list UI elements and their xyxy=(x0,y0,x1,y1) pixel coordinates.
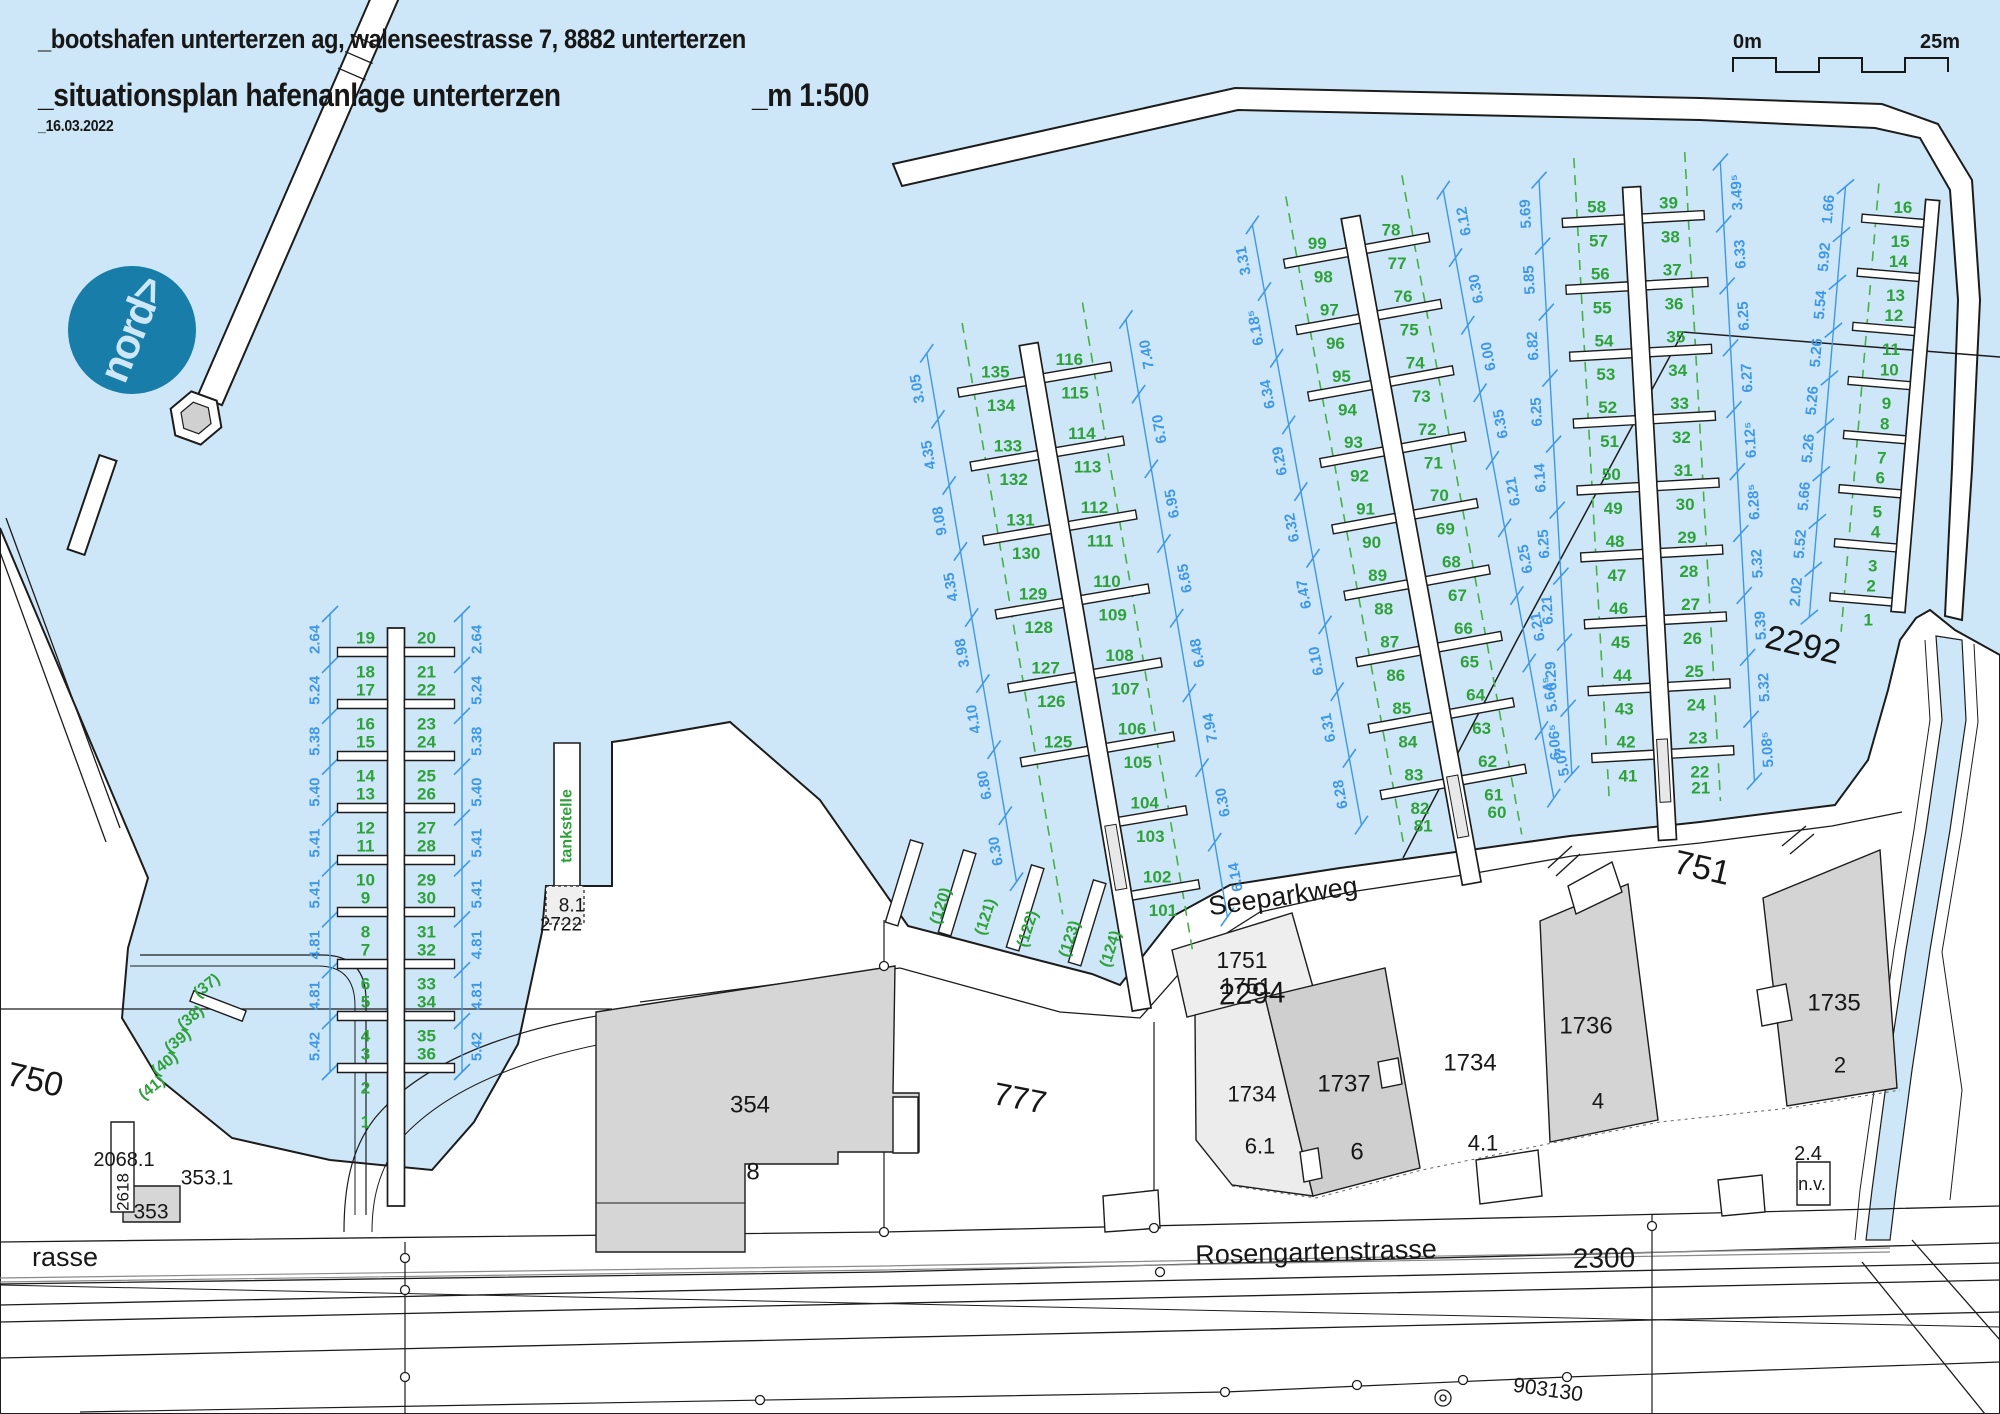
berth-number: 4 xyxy=(1871,523,1881,542)
berth-number: 43 xyxy=(1615,700,1634,719)
berth-number: 31 xyxy=(1674,461,1693,480)
berth-number: 82 xyxy=(1410,799,1429,818)
dimension-value: 5.52 xyxy=(1791,529,1810,560)
scale-bar-start: 0m xyxy=(1733,31,1762,53)
berth-number: 104 xyxy=(1130,794,1159,813)
berth-number: 21 xyxy=(1691,779,1710,798)
berth-number: 11 xyxy=(357,837,375,856)
situationsplan-page: 2.645.245.385.405.415.414.814.815.422.64… xyxy=(0,0,2000,1414)
berth-number: 7 xyxy=(361,941,370,960)
berth-number: 49 xyxy=(1604,499,1623,518)
berth-number: 15 xyxy=(1891,232,1910,251)
berth-number: 92 xyxy=(1350,467,1369,486)
berth-number: 25 xyxy=(1685,662,1704,681)
dimension-value: 6.29 xyxy=(1542,661,1561,691)
dimension-value: 5.26 xyxy=(1799,433,1818,464)
plan-date: _16.03.2022 xyxy=(38,118,783,136)
parcel-label: 2618 xyxy=(114,1173,133,1211)
dimension-value: 5.66 xyxy=(1795,481,1814,512)
berth-number: 70 xyxy=(1430,486,1449,505)
berth-number: 3 xyxy=(1868,557,1877,576)
berth-number: 7 xyxy=(1877,448,1886,467)
berth-number: 94 xyxy=(1338,400,1357,419)
berth-number: 110 xyxy=(1093,572,1120,591)
finger-pier xyxy=(338,648,388,657)
berth-number: 91 xyxy=(1356,500,1375,519)
berth-number: 95 xyxy=(1332,367,1351,386)
scale-bar: 0m 25m xyxy=(1728,26,1968,86)
berth-number: 129 xyxy=(1019,584,1047,603)
berth-number: 131 xyxy=(1006,510,1034,529)
berth-number: 108 xyxy=(1105,646,1133,665)
dimension-value: 5.42 xyxy=(469,1032,486,1061)
dimension-value: 6.14 xyxy=(1531,462,1550,493)
berth-number: 37 xyxy=(1663,260,1682,279)
berth-number: 38 xyxy=(1661,227,1680,246)
dimension-value: 5.26 xyxy=(1807,338,1826,369)
berth-number: 85 xyxy=(1392,699,1411,718)
berth-number: 130 xyxy=(1012,544,1040,563)
berth-number: 32 xyxy=(1672,428,1691,447)
title-address: _bootshafen unterterzen ag, walenseestra… xyxy=(38,24,783,55)
survey-point xyxy=(1648,1222,1657,1231)
berth-number: 34 xyxy=(1668,361,1687,380)
dimension-value: 6.27 xyxy=(1738,363,1757,393)
dimension-value: 6.82 xyxy=(1524,331,1543,361)
parcel-label: Rosengartenstrasse xyxy=(1195,1234,1437,1270)
parcel-label: 2068.1 xyxy=(93,1149,154,1171)
berth-number: 71 xyxy=(1424,453,1443,472)
berth-number: 61 xyxy=(1484,785,1503,804)
berth-number: 115 xyxy=(1061,384,1088,403)
berth-number: 4 xyxy=(361,1027,371,1046)
dimension-value: 2.02 xyxy=(1787,577,1806,608)
berth-number: 116 xyxy=(1056,350,1083,369)
dimension-value: 1.66 xyxy=(1819,194,1838,225)
survey-point xyxy=(1221,1388,1230,1397)
berth-number: 102 xyxy=(1143,868,1171,887)
berth-number: 9 xyxy=(1882,394,1891,413)
berth-number: 44 xyxy=(1613,666,1632,685)
berth-number: 10 xyxy=(1880,360,1899,379)
finger-pier xyxy=(405,804,455,813)
dimension-value: 6.25 xyxy=(1735,301,1754,331)
berth-number: 84 xyxy=(1398,732,1417,751)
berth-number: 106 xyxy=(1118,720,1146,739)
dimension-value: 5.69 xyxy=(1517,199,1536,229)
parcel-label: 2.4 xyxy=(1794,1143,1822,1165)
berth-number: 63 xyxy=(1472,719,1491,738)
berth-number: 21 xyxy=(417,663,436,682)
dimension-value: 5.41 xyxy=(469,828,486,857)
parcel-label: 353 xyxy=(133,1201,168,1224)
scale-bar-ruler xyxy=(1733,58,1948,72)
berth-number: 90 xyxy=(1362,533,1381,552)
dimension-value: 2.64 xyxy=(469,624,486,654)
berth-number: 50 xyxy=(1602,465,1621,484)
berth-number: 103 xyxy=(1136,827,1164,846)
finger-pier xyxy=(338,700,388,709)
finger-pier xyxy=(338,752,388,761)
shed xyxy=(1476,1150,1542,1204)
dimension-value: 5.32 xyxy=(1755,672,1774,702)
dimension-value: 4.81 xyxy=(307,930,324,959)
parcel-label: 1751 xyxy=(1220,973,1271,999)
berth-number: 81 xyxy=(1414,816,1433,835)
dimension-value: 6.06⁵ xyxy=(1545,723,1564,760)
berth-number: 101 xyxy=(1149,901,1177,920)
finger-pier xyxy=(405,1064,455,1073)
dimension-value: 5.08⁵ xyxy=(1758,731,1777,768)
berth-number: 45 xyxy=(1611,633,1630,652)
berth-number: 3 xyxy=(361,1045,370,1064)
berth-number: 6 xyxy=(361,975,370,994)
survey-point xyxy=(1353,1381,1362,1390)
dimension-value: 5.40 xyxy=(469,778,486,807)
berth-number: 51 xyxy=(1600,432,1619,451)
dimension-value: 4.81 xyxy=(307,981,324,1010)
finger-pier xyxy=(338,960,388,969)
dimension-value: 6.12⁵ xyxy=(1741,421,1760,458)
berth-number: 87 xyxy=(1380,632,1399,651)
dimension-value: 5.85 xyxy=(1520,265,1539,295)
berth-number: 17 xyxy=(356,681,375,700)
berth-number: 114 xyxy=(1068,424,1096,443)
berth-number: 5 xyxy=(361,993,370,1012)
parcel-label: 8 xyxy=(746,1159,759,1186)
berth-number: 109 xyxy=(1099,605,1127,624)
finger-pier xyxy=(338,804,388,813)
finger-pier xyxy=(405,960,455,969)
berth-number: 48 xyxy=(1606,532,1625,551)
berth-number: 133 xyxy=(994,437,1022,456)
berth-number: 8 xyxy=(361,923,370,942)
parcel-label: 1734 xyxy=(1443,1050,1496,1077)
berth-number: 10 xyxy=(356,871,375,890)
parcel-label: 6 xyxy=(1350,1139,1363,1166)
berth-number: 46 xyxy=(1609,599,1628,618)
berth-number: 132 xyxy=(999,470,1027,489)
berth-number: 1 xyxy=(361,1113,370,1132)
finger-pier xyxy=(405,648,455,657)
finger-pier xyxy=(338,1012,388,1021)
survey-point xyxy=(401,1373,410,1382)
berth-number: 35 xyxy=(417,1027,436,1046)
berth-number: 47 xyxy=(1607,566,1626,585)
parcel-label: 4.1 xyxy=(1468,1131,1499,1156)
berth-number: 55 xyxy=(1593,298,1612,317)
berth-number: 52 xyxy=(1598,398,1617,417)
berth-number: 11 xyxy=(1882,340,1900,359)
berth-number: 105 xyxy=(1124,753,1152,772)
berth-number: 36 xyxy=(1665,294,1684,313)
berth-number: 66 xyxy=(1454,619,1473,638)
berth-number: 64 xyxy=(1466,685,1485,704)
parcel-label: 354 xyxy=(730,1092,770,1119)
berth-number: 98 xyxy=(1314,267,1333,286)
berth-number: 2 xyxy=(361,1079,370,1098)
dimension-value: 5.24 xyxy=(469,675,486,705)
berth-number: 32 xyxy=(417,941,436,960)
berth-number: 12 xyxy=(1884,306,1903,325)
parcel-label: 1737 xyxy=(1317,1071,1370,1098)
berth-number: 30 xyxy=(417,889,436,908)
dimension-value: 5.54 xyxy=(1811,289,1830,320)
berth-number: 29 xyxy=(1677,528,1696,547)
parcel-label: 2 xyxy=(1834,1053,1846,1078)
finger-pier xyxy=(405,700,455,709)
berth-number: 107 xyxy=(1111,679,1139,698)
berth-number: 113 xyxy=(1074,457,1101,476)
berth-number: 34 xyxy=(417,993,436,1012)
harbor-site-plan: 2.645.245.385.405.415.414.814.815.422.64… xyxy=(0,0,2000,1414)
parcel-label: 8.1 xyxy=(559,896,585,917)
berth-number: 75 xyxy=(1400,320,1419,339)
dimension-value: 6.25 xyxy=(1528,397,1547,427)
berth-number: 99 xyxy=(1308,234,1327,253)
survey-point xyxy=(1150,1224,1159,1233)
dimension-value: 5.41 xyxy=(307,828,324,857)
title-block: _bootshafen unterterzen ag, walenseestra… xyxy=(38,24,885,136)
berth-number: 33 xyxy=(417,975,436,994)
berth-number: 16 xyxy=(1893,198,1912,217)
dimension-value: 2.64 xyxy=(307,624,324,654)
berth-number: 86 xyxy=(1386,666,1405,685)
berth-number: 16 xyxy=(356,715,375,734)
survey-point xyxy=(1156,1268,1165,1277)
finger-pier xyxy=(338,1064,388,1073)
berth-number: 42 xyxy=(1617,733,1636,752)
berth-number: 28 xyxy=(1679,562,1698,581)
berth-number: 68 xyxy=(1442,553,1461,572)
berth-number: 14 xyxy=(356,767,375,786)
berth-number: 13 xyxy=(1886,286,1905,305)
finger-pier xyxy=(338,856,388,865)
dimension-value: 5.26 xyxy=(1803,385,1822,416)
north-arrow-badge: nord> xyxy=(68,266,196,394)
berth-number: 14 xyxy=(1889,252,1908,271)
dimension-value: 5.38 xyxy=(307,727,324,756)
dimension-value: 5.42 xyxy=(307,1032,324,1061)
dimension-value: 6.28⁵ xyxy=(1745,483,1764,520)
parcel-label: n.v. xyxy=(1798,1174,1826,1194)
berth-number: 5 xyxy=(1873,502,1882,521)
pier-walkway xyxy=(388,628,405,1206)
dimension-value: 5.41 xyxy=(469,879,486,908)
survey-point xyxy=(880,1228,889,1237)
berth-number: 93 xyxy=(1344,433,1363,452)
berth-number: 54 xyxy=(1595,331,1614,350)
berth-number: 111 xyxy=(1087,531,1114,550)
survey-point xyxy=(880,962,889,971)
berth-number: 33 xyxy=(1670,394,1689,413)
berth-number: 28 xyxy=(417,837,436,856)
berth-number: 77 xyxy=(1388,254,1407,273)
building-1737-notch xyxy=(1378,1058,1402,1088)
berth-number: 26 xyxy=(1683,629,1702,648)
berth-number: 1 xyxy=(1863,611,1872,630)
berth-number: 57 xyxy=(1589,231,1608,250)
berth-number: 127 xyxy=(1031,658,1059,677)
berth-number: 31 xyxy=(417,923,436,942)
survey-point xyxy=(1459,1376,1468,1385)
building-1735-annex xyxy=(1757,984,1792,1026)
north-arrow-label: nord> xyxy=(90,271,175,389)
berth-number: tankstelle xyxy=(559,789,576,863)
berth-number: 96 xyxy=(1326,334,1345,353)
berth-number: 62 xyxy=(1478,752,1497,771)
berth-number: 24 xyxy=(1687,696,1706,715)
parcel-label: 2722 xyxy=(540,915,582,936)
berth-number: 23 xyxy=(417,715,436,734)
map-scale-label: _m 1:500 xyxy=(752,77,869,114)
berth-number: 9 xyxy=(361,889,370,908)
parcel-label: 1736 xyxy=(1559,1013,1612,1040)
berth-number: 25 xyxy=(417,767,436,786)
berth-number: 67 xyxy=(1448,586,1467,605)
dimension-value: 6.21 xyxy=(1538,595,1557,625)
berth-number: 26 xyxy=(417,785,436,804)
berth-number: 125 xyxy=(1044,732,1072,751)
dimension-value: 5.40 xyxy=(307,778,324,807)
finger-pier xyxy=(405,856,455,865)
berth-number: 22 xyxy=(417,681,436,700)
berth-number: 126 xyxy=(1037,692,1065,711)
berth-number: 39 xyxy=(1659,194,1678,213)
berth-number: 12 xyxy=(356,819,375,838)
survey-point xyxy=(401,1286,410,1295)
berth-number: 24 xyxy=(417,733,436,752)
berth-number: 15 xyxy=(356,733,375,752)
berth-number: 2 xyxy=(1866,577,1875,596)
berth-number: 89 xyxy=(1368,566,1387,585)
berth-number: 88 xyxy=(1374,600,1393,619)
berth-number: 30 xyxy=(1676,495,1695,514)
berth-number: 128 xyxy=(1025,618,1053,637)
berth-number: 18 xyxy=(356,663,375,682)
berth-number: 13 xyxy=(356,785,375,804)
dimension-value: 5.24 xyxy=(307,675,324,705)
berth-number: 58 xyxy=(1587,197,1606,216)
berth-number: 36 xyxy=(417,1045,436,1064)
page-title: _situationsplan hafenanlage unterterzen xyxy=(38,77,561,114)
berth-number: 72 xyxy=(1418,420,1437,439)
berth-number: 78 xyxy=(1382,221,1401,240)
berth-number: 97 xyxy=(1320,300,1339,319)
berth-number: 134 xyxy=(987,396,1016,415)
berth-number: 27 xyxy=(1681,595,1700,614)
parcel-label: 4 xyxy=(1592,1089,1604,1114)
parcel-label: 1734 xyxy=(1228,1082,1277,1107)
berth-number: 29 xyxy=(417,871,436,890)
berth-number: 6 xyxy=(1875,469,1884,488)
berth-number: 83 xyxy=(1404,765,1423,784)
dimension-value: 4.81 xyxy=(469,930,486,959)
shed xyxy=(1718,1175,1765,1216)
dimension-value: 4.81 xyxy=(469,981,486,1010)
finger-pier xyxy=(405,908,455,917)
dimension-value: 5.38 xyxy=(469,727,486,756)
scale-bar-end: 25m xyxy=(1920,31,1960,53)
parcel-label: 1735 xyxy=(1807,990,1860,1017)
berth-number: 53 xyxy=(1596,365,1615,384)
finger-pier xyxy=(405,1012,455,1021)
survey-point xyxy=(756,1396,765,1405)
berth-number: 65 xyxy=(1460,653,1479,672)
building-1737-notch xyxy=(1300,1148,1322,1182)
survey-point xyxy=(401,1254,410,1263)
berth-number: 60 xyxy=(1487,803,1506,822)
dimension-value: 5.92 xyxy=(1815,242,1834,273)
dimension-value: 6.33 xyxy=(1731,239,1750,269)
parcel-label: 353.1 xyxy=(181,1167,234,1190)
dimension-value: 5.32 xyxy=(1748,549,1767,579)
dimension-value: 3.49⁵ xyxy=(1728,174,1747,211)
berth-number: 69 xyxy=(1436,520,1455,539)
parcel-label: 1751 xyxy=(1216,947,1267,973)
berth-number: 19 xyxy=(356,629,375,648)
finger-pier xyxy=(338,908,388,917)
berth-number: 20 xyxy=(417,629,436,648)
berth-number: 73 xyxy=(1412,387,1431,406)
berth-number: 76 xyxy=(1394,287,1413,306)
finger-pier xyxy=(405,752,455,761)
berth-number: 112 xyxy=(1081,498,1108,517)
berth-number: 41 xyxy=(1619,767,1638,786)
building-354-annex xyxy=(893,1097,918,1153)
berth-number: 135 xyxy=(981,363,1009,382)
berth-number: 35 xyxy=(1666,327,1685,346)
parcel-label: 6.1 xyxy=(1245,1134,1276,1159)
berth-number: 74 xyxy=(1406,353,1425,372)
parcel-label: rasse xyxy=(32,1242,98,1272)
berth-number: 23 xyxy=(1689,729,1708,748)
parcel-label: 2300 xyxy=(1573,1242,1636,1274)
dimension-value: 6.25 xyxy=(1535,529,1554,559)
berth-number: 8 xyxy=(1880,414,1889,433)
berth-number: 56 xyxy=(1591,264,1610,283)
dimension-value: 5.41 xyxy=(307,879,324,908)
berth-number: 27 xyxy=(417,819,436,838)
